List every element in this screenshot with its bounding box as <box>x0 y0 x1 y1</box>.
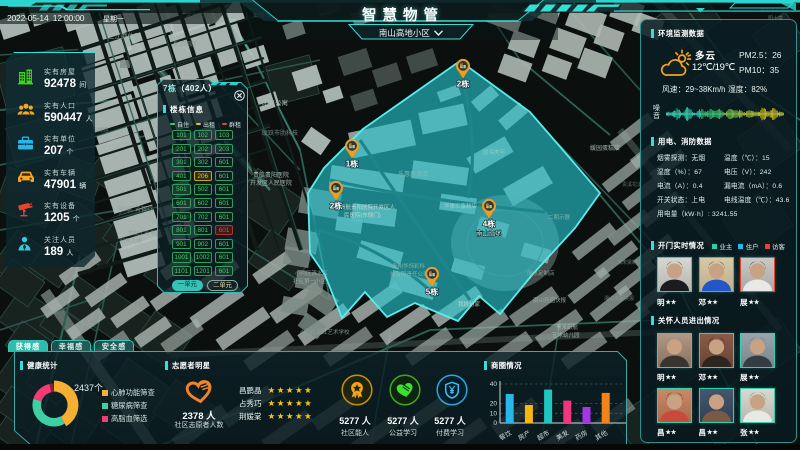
svg-text:5栋: 5栋 <box>426 287 438 297</box>
svg-text:其他: 其他 <box>593 428 609 443</box>
svg-text:小河区唱红艺术学校: 小河区唱红艺术学校 <box>300 328 350 336</box>
svg-text:南山药园快报: 南山药园快报 <box>533 296 567 304</box>
svg-text:2栋: 2栋 <box>457 79 469 89</box>
svg-text:我娃幻家: 我娃幻家 <box>458 300 481 308</box>
svg-text:1栋: 1栋 <box>346 159 358 169</box>
svg-text:美发: 美发 <box>554 428 570 443</box>
svg-text:疆海美甲: 疆海美甲 <box>483 148 505 156</box>
svg-text:民医院(东侧门): 民医院(东侧门) <box>344 211 381 219</box>
svg-text:艺术幼儿园: 艺术幼儿园 <box>552 331 580 339</box>
svg-text:小河区清水江: 小河区清水江 <box>295 269 329 277</box>
svg-text:南山高地: 南山高地 <box>476 229 503 238</box>
svg-text:房产: 房产 <box>516 428 532 443</box>
svg-text:贵航贵阳医院开发区人: 贵航贵阳医院开发区人 <box>340 203 396 211</box>
svg-text:技有限责任公司: 技有限责任公司 <box>390 270 429 278</box>
svg-text:社区第一小区: 社区第一小区 <box>293 277 327 285</box>
svg-text:消末梁制店: 消末梁制店 <box>617 259 642 266</box>
svg-text:中国广告银行: 中国广告银行 <box>117 205 153 213</box>
svg-text:妇科大楼: 妇科大楼 <box>120 237 143 245</box>
svg-text:贵州华饰彩科: 贵州华饰彩科 <box>392 262 426 270</box>
svg-text:2栋: 2栋 <box>330 201 342 211</box>
svg-text:华体汇蛋糕店: 华体汇蛋糕店 <box>444 202 478 210</box>
svg-text:0: 0 <box>493 420 497 427</box>
svg-text:联跃市肋科技: 联跃市肋科技 <box>262 129 298 137</box>
svg-text:阳亮公寓: 阳亮公寓 <box>262 98 288 107</box>
svg-text:贵航贵阳医院: 贵航贵阳医院 <box>253 171 289 179</box>
svg-text:20: 20 <box>490 401 498 408</box>
svg-text:10: 10 <box>490 410 498 417</box>
svg-text:餐饮: 餐饮 <box>497 428 513 443</box>
svg-text:药房: 药房 <box>573 428 589 442</box>
svg-text:丽水足制店: 丽水足制店 <box>527 269 555 277</box>
svg-text:开发区人民医院: 开发区人民医院 <box>250 179 292 187</box>
svg-text:乐惠居酒店: 乐惠居酒店 <box>398 170 428 178</box>
svg-text:黑米织航: 黑米织航 <box>556 323 579 331</box>
svg-text:4栋: 4栋 <box>483 219 495 229</box>
svg-text:40: 40 <box>490 381 498 388</box>
svg-text:二期示器: 二期示器 <box>548 214 571 221</box>
svg-text:超市: 超市 <box>535 428 551 443</box>
svg-text:湘山市图快报: 湘山市图快报 <box>604 295 634 302</box>
svg-text:媛园蛋糕店: 媛园蛋糕店 <box>590 144 620 152</box>
